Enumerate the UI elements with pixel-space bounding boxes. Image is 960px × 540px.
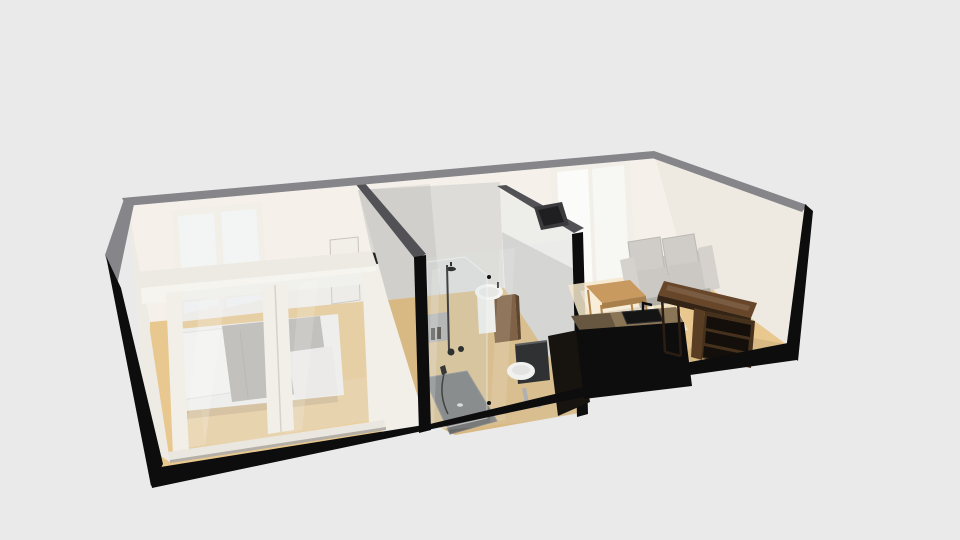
glass-hinge-top (487, 275, 491, 279)
floorplan-3d-render[interactable]: Isometric dollhouse cutaway 3D render of… (0, 0, 960, 540)
kitchen-sink (622, 309, 663, 324)
glass-hinge-bottom (487, 401, 491, 405)
model-viewport[interactable]: Isometric dollhouse cutaway 3D render of… (0, 0, 960, 540)
